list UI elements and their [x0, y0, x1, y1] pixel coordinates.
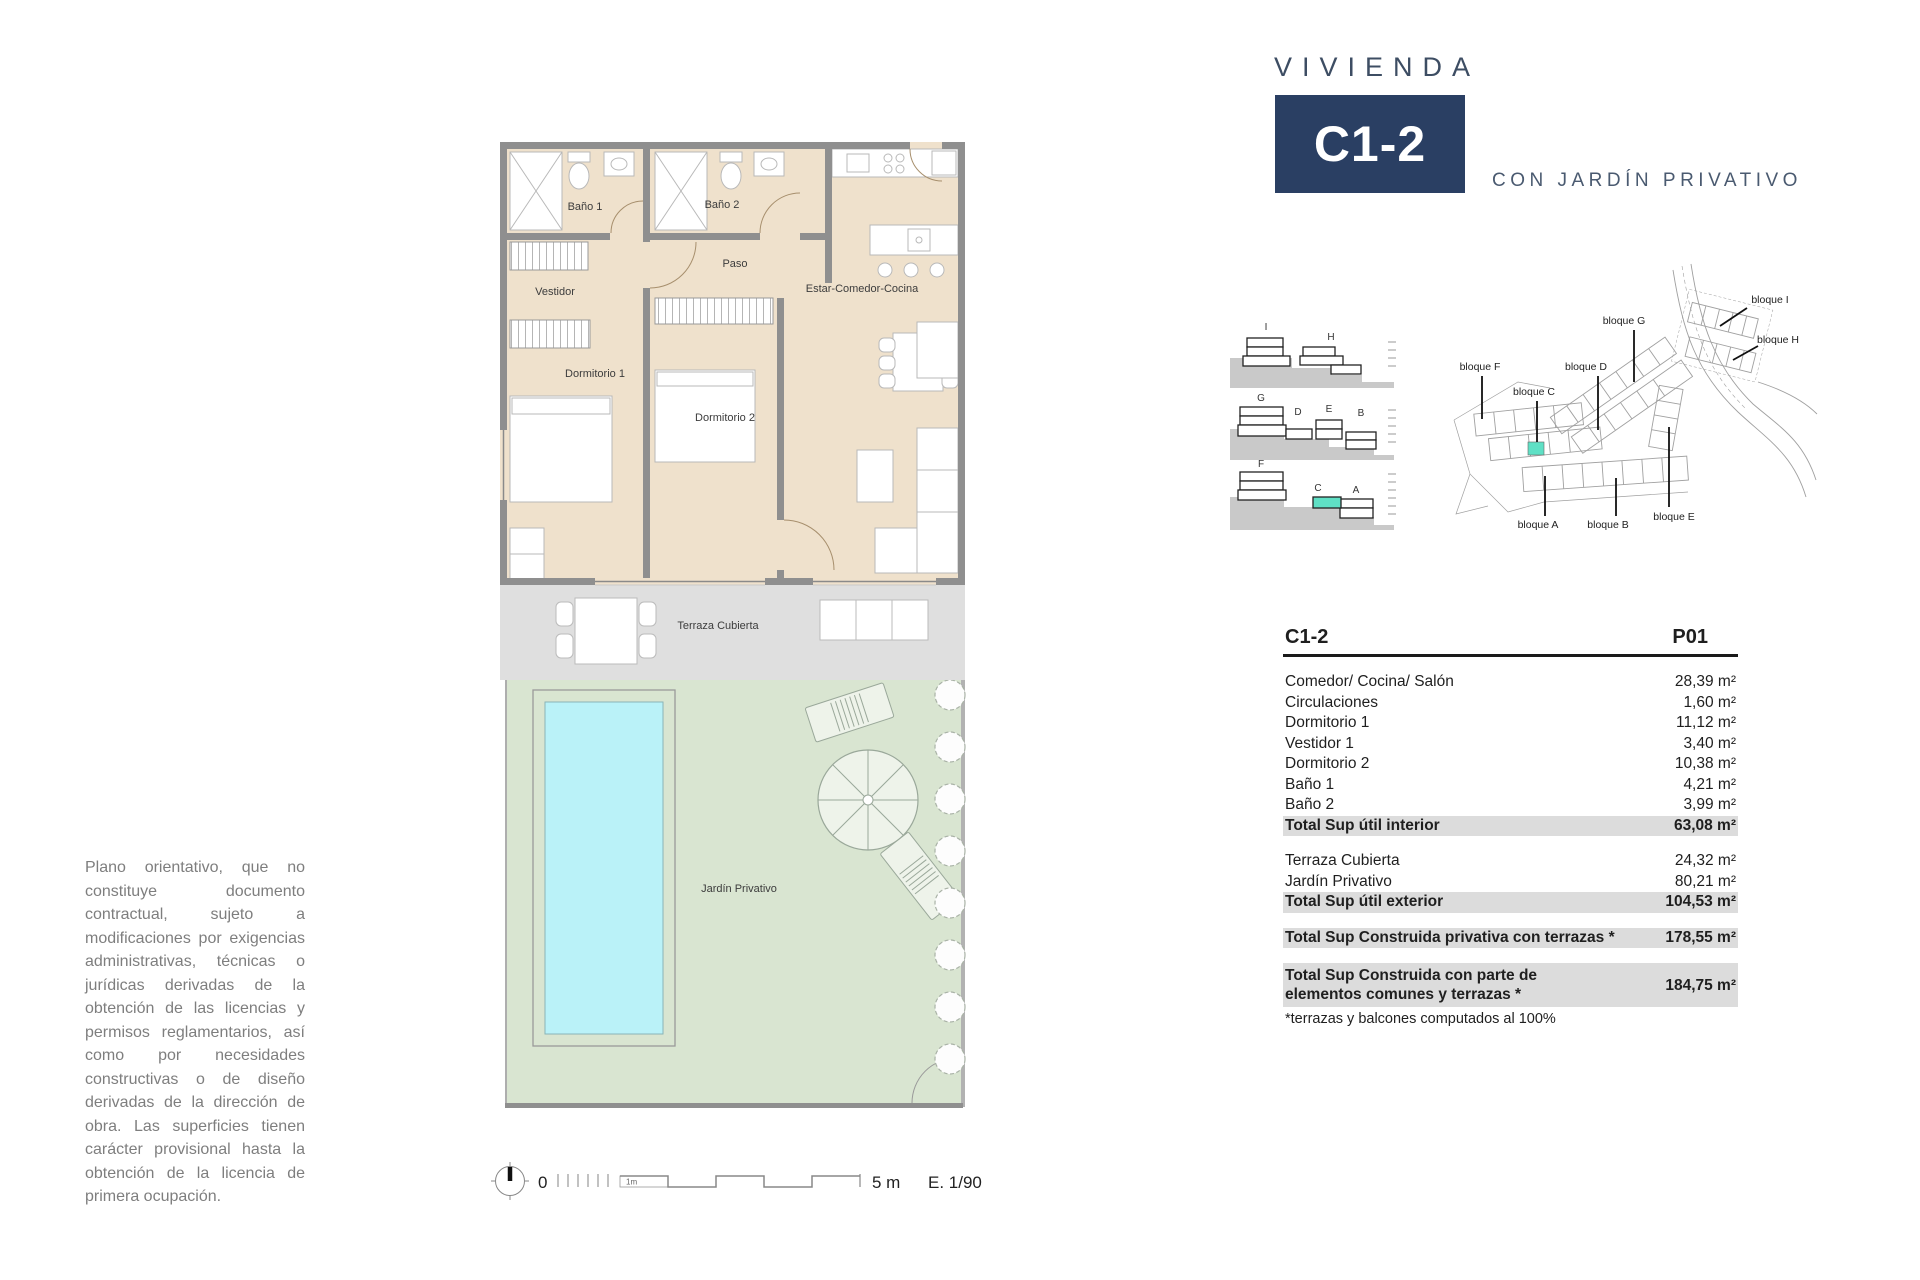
unit-code: C1-2: [1314, 115, 1426, 173]
plan-sheet: VIVIENDA C1-2 CON JARDÍN PRIVATIVO: [0, 0, 1920, 1280]
elevation-diagrams: I H G D E B: [1228, 312, 1428, 537]
site-label-bloque-b: bloque B: [1587, 519, 1628, 531]
wardrobe: [510, 242, 588, 270]
site-label-bloque-e: bloque E: [1653, 511, 1694, 523]
site-label-bloque-h: bloque H: [1757, 334, 1799, 346]
closet: [510, 528, 544, 580]
area-row: Terraza Cubierta 24,32 m²: [1283, 851, 1738, 872]
highlighted-unit: [1528, 442, 1544, 455]
outdoor-bench: [820, 600, 928, 640]
built-common-total-row: Total Sup Construida con parte de elemen…: [1283, 963, 1738, 1007]
scale-steps: [620, 1176, 860, 1187]
room-label-paso: Paso: [722, 258, 747, 270]
unit-subtitle: CON JARDÍN PRIVATIVO: [1492, 170, 1802, 192]
area-row: Dormitorio 2 10,38 m²: [1283, 754, 1738, 775]
scale-end: 5 m: [872, 1173, 900, 1192]
highlighted-unit: [1313, 497, 1341, 508]
kitchen-counter: [832, 149, 958, 177]
brand-title: VIVIENDA: [1274, 52, 1480, 83]
toilet: [568, 152, 590, 189]
area-row: Circulaciones 1,60 m²: [1283, 693, 1738, 714]
room-label-terraza: Terraza Cubierta: [677, 620, 759, 632]
sink: [604, 152, 634, 176]
elevation-label: A: [1353, 485, 1360, 496]
room-label-bano1: Baño 1: [568, 201, 603, 213]
sink: [754, 152, 784, 176]
elevation-label: C: [1314, 483, 1321, 494]
area-row: Jardín Privativo 80,21 m²: [1283, 872, 1738, 893]
wardrobe: [655, 298, 773, 324]
room-label-dormitorio1: Dormitorio 1: [565, 368, 625, 380]
site-label-bloque-i: bloque I: [1751, 294, 1788, 306]
room-label-estar: Estar-Comedor-Cocina: [806, 283, 919, 295]
toilet: [720, 152, 742, 189]
elevation-label: F: [1258, 459, 1264, 470]
shower: [655, 152, 707, 230]
floor-plan: Jardín Privativo Terraza Cubierta: [480, 130, 990, 1130]
site-label-bloque-g: bloque G: [1603, 315, 1646, 327]
wardrobe: [510, 320, 590, 348]
elevation-label: H: [1327, 332, 1334, 343]
north-arrow-icon: [491, 1162, 529, 1200]
scale-first-meter: 1m: [626, 1178, 637, 1187]
scale-ticks: [558, 1174, 608, 1187]
scale-ratio: E. 1/90: [928, 1173, 982, 1192]
built-private-total-row: Total Sup Construida privativa con terra…: [1283, 928, 1738, 949]
site-label-bloque-c: bloque C: [1513, 386, 1555, 398]
table-unit-code: C1-2: [1285, 626, 1328, 649]
area-row: Baño 1 4,21 m²: [1283, 775, 1738, 796]
elevation-label: G: [1257, 393, 1265, 404]
area-table: C1-2 P01 Comedor/ Cocina/ Salón 28,39 m²…: [1283, 626, 1738, 1027]
area-table-header: C1-2 P01: [1283, 626, 1738, 657]
elevation-label: I: [1265, 322, 1268, 333]
unit-code-badge: C1-2: [1275, 95, 1465, 193]
shower: [510, 152, 562, 230]
elevation-row-2: G D E B: [1230, 393, 1396, 460]
elevation-label: E: [1326, 404, 1333, 415]
table-footnote: *terrazas y balcones computados al 100%: [1283, 1011, 1738, 1027]
site-label-bloque-d: bloque D: [1565, 361, 1607, 373]
elevation-label: B: [1358, 408, 1365, 419]
apartment: Baño 1 Baño 2 Paso Vestidor Dormitorio 1…: [500, 142, 965, 585]
pool: [533, 690, 675, 1046]
room-label-jardin: Jardín Privativo: [701, 883, 777, 895]
exterior-total-row: Total Sup útil exterior 104,53 m²: [1283, 892, 1738, 913]
elevation-label: D: [1294, 407, 1301, 418]
elevation-row-1: I H: [1230, 322, 1396, 388]
scale-zero: 0: [538, 1173, 547, 1192]
site-label-bloque-a: bloque A: [1518, 519, 1559, 531]
parasol-icon: [818, 750, 918, 850]
covered-terrace: Terraza Cubierta: [500, 585, 965, 680]
site-label-bloque-f: bloque F: [1460, 361, 1501, 373]
room-label-vestidor: Vestidor: [535, 286, 575, 298]
scale-bar: 0 1m 5 m E. 1/90: [480, 1158, 1000, 1208]
room-label-bano2: Baño 2: [705, 199, 740, 211]
area-row: Vestidor 1 3,40 m²: [1283, 734, 1738, 755]
room-label-dormitorio2: Dormitorio 2: [695, 412, 755, 424]
site-plan: bloque I bloque H bloque G bloque D bloq…: [1448, 262, 1818, 562]
area-row: Comedor/ Cocina/ Salón 28,39 m²: [1283, 672, 1738, 693]
elevation-row-3: F C A: [1230, 459, 1396, 530]
bed: [510, 396, 612, 502]
private-garden: Jardín Privativo: [505, 680, 965, 1108]
area-row: Baño 2 3,99 m²: [1283, 795, 1738, 816]
area-row: Dormitorio 1 11,12 m²: [1283, 713, 1738, 734]
interior-total-row: Total Sup útil interior 63,08 m²: [1283, 816, 1738, 837]
disclaimer-text: Plano orientativo, que no constituye doc…: [85, 856, 305, 1209]
table-floor-code: P01: [1672, 626, 1736, 649]
